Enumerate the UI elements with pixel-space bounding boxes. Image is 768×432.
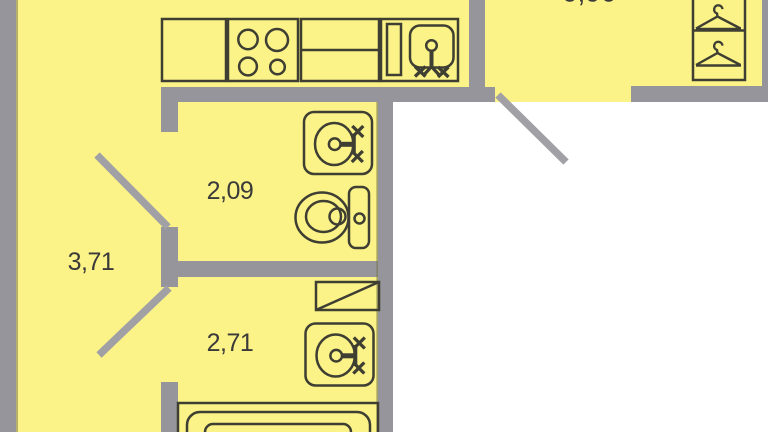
- svg-text:2,09: 2,09: [207, 177, 254, 205]
- svg-text:2,71: 2,71: [207, 329, 254, 357]
- svg-text:3,71: 3,71: [68, 248, 115, 276]
- svg-text:0,90: 0,90: [562, 0, 616, 9]
